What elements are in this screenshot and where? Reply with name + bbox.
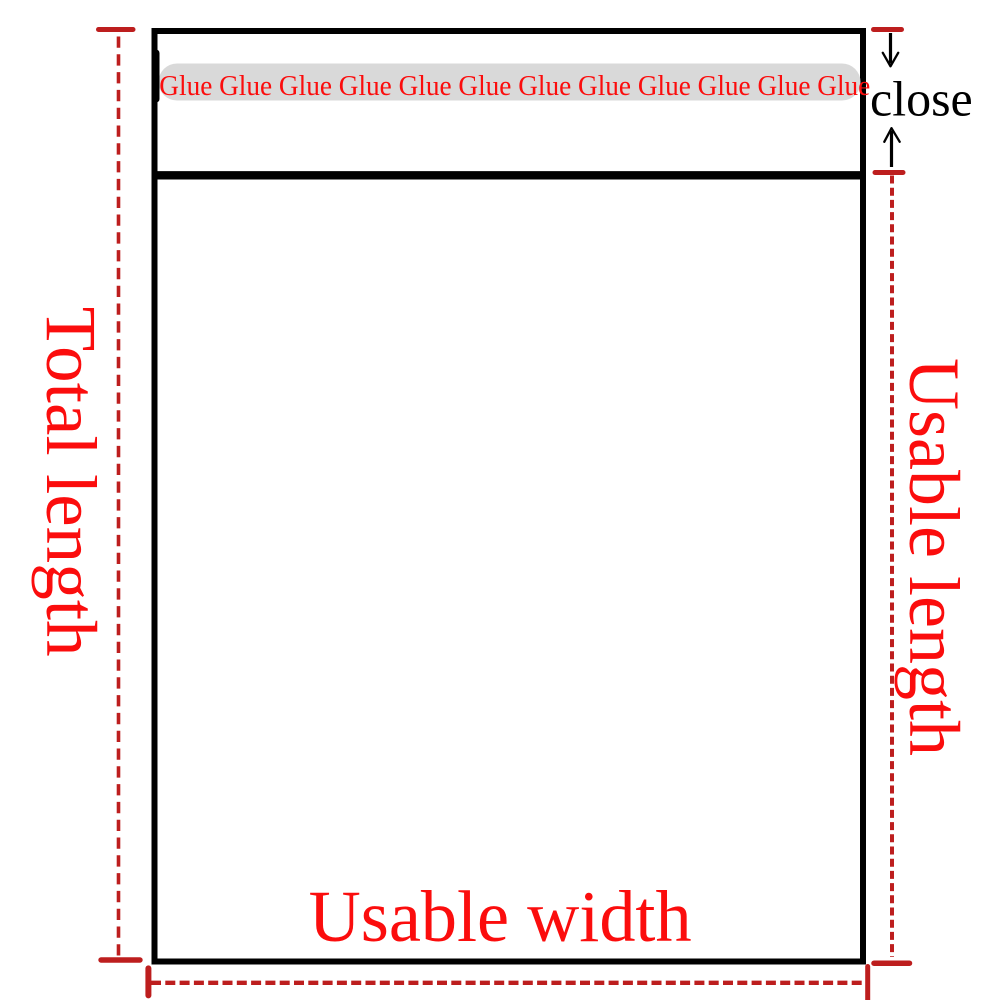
svg-text:Usable length: Usable length bbox=[894, 358, 974, 756]
svg-text:Total length: Total length bbox=[31, 307, 111, 657]
svg-text:Usable width: Usable width bbox=[309, 876, 692, 957]
svg-text:close: close bbox=[870, 71, 973, 127]
svg-text:Glue Glue Glue Glue Glue Glue: Glue Glue Glue Glue Glue Glue Glue Glue … bbox=[159, 71, 870, 102]
